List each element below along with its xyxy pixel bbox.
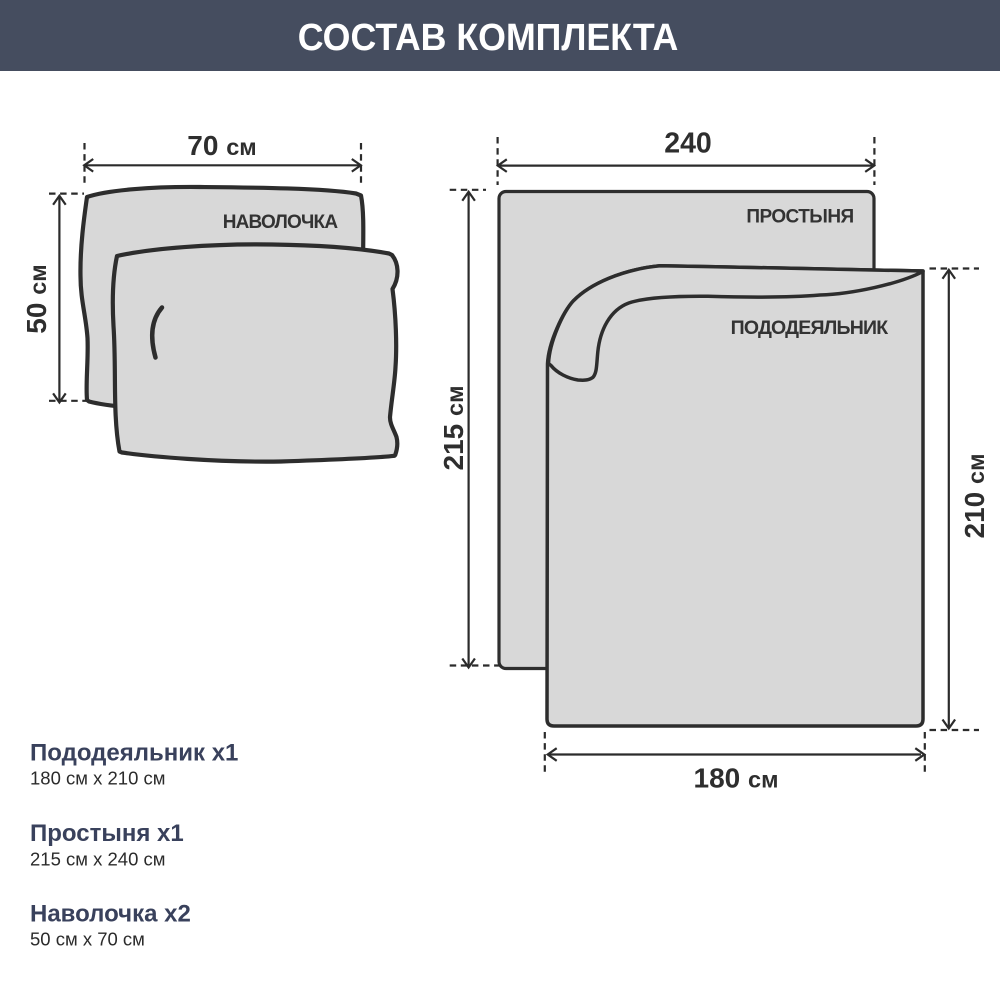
svg-text:215 см x 240 см: 215 см x 240 см <box>30 849 165 870</box>
svg-text:ПОДОДЕЯЛЬНИК: ПОДОДЕЯЛЬНИК <box>731 317 889 339</box>
svg-text:70 см: 70 см <box>187 130 256 161</box>
svg-text:50 см x 70 см: 50 см x 70 см <box>30 929 145 950</box>
svg-text:240: 240 <box>664 128 712 160</box>
svg-text:180 см x 210 см: 180 см x 210 см <box>30 768 165 789</box>
svg-text:215 см: 215 см <box>438 386 469 471</box>
svg-text:Простыня x1: Простыня x1 <box>30 820 184 847</box>
svg-text:50 см: 50 см <box>21 264 52 333</box>
svg-text:СОСТАВ КОМПЛЕКТА: СОСТАВ КОМПЛЕКТА <box>298 16 678 58</box>
svg-text:ПРОСТЫНЯ: ПРОСТЫНЯ <box>746 207 853 228</box>
svg-text:Наволочка x2: Наволочка x2 <box>30 901 191 928</box>
svg-text:Пододеяльник x1: Пододеяльник x1 <box>30 740 238 767</box>
svg-text:180 см: 180 см <box>694 763 779 794</box>
svg-text:210 см: 210 см <box>959 454 990 539</box>
svg-text:НАВОЛОЧКА: НАВОЛОЧКА <box>223 212 339 233</box>
